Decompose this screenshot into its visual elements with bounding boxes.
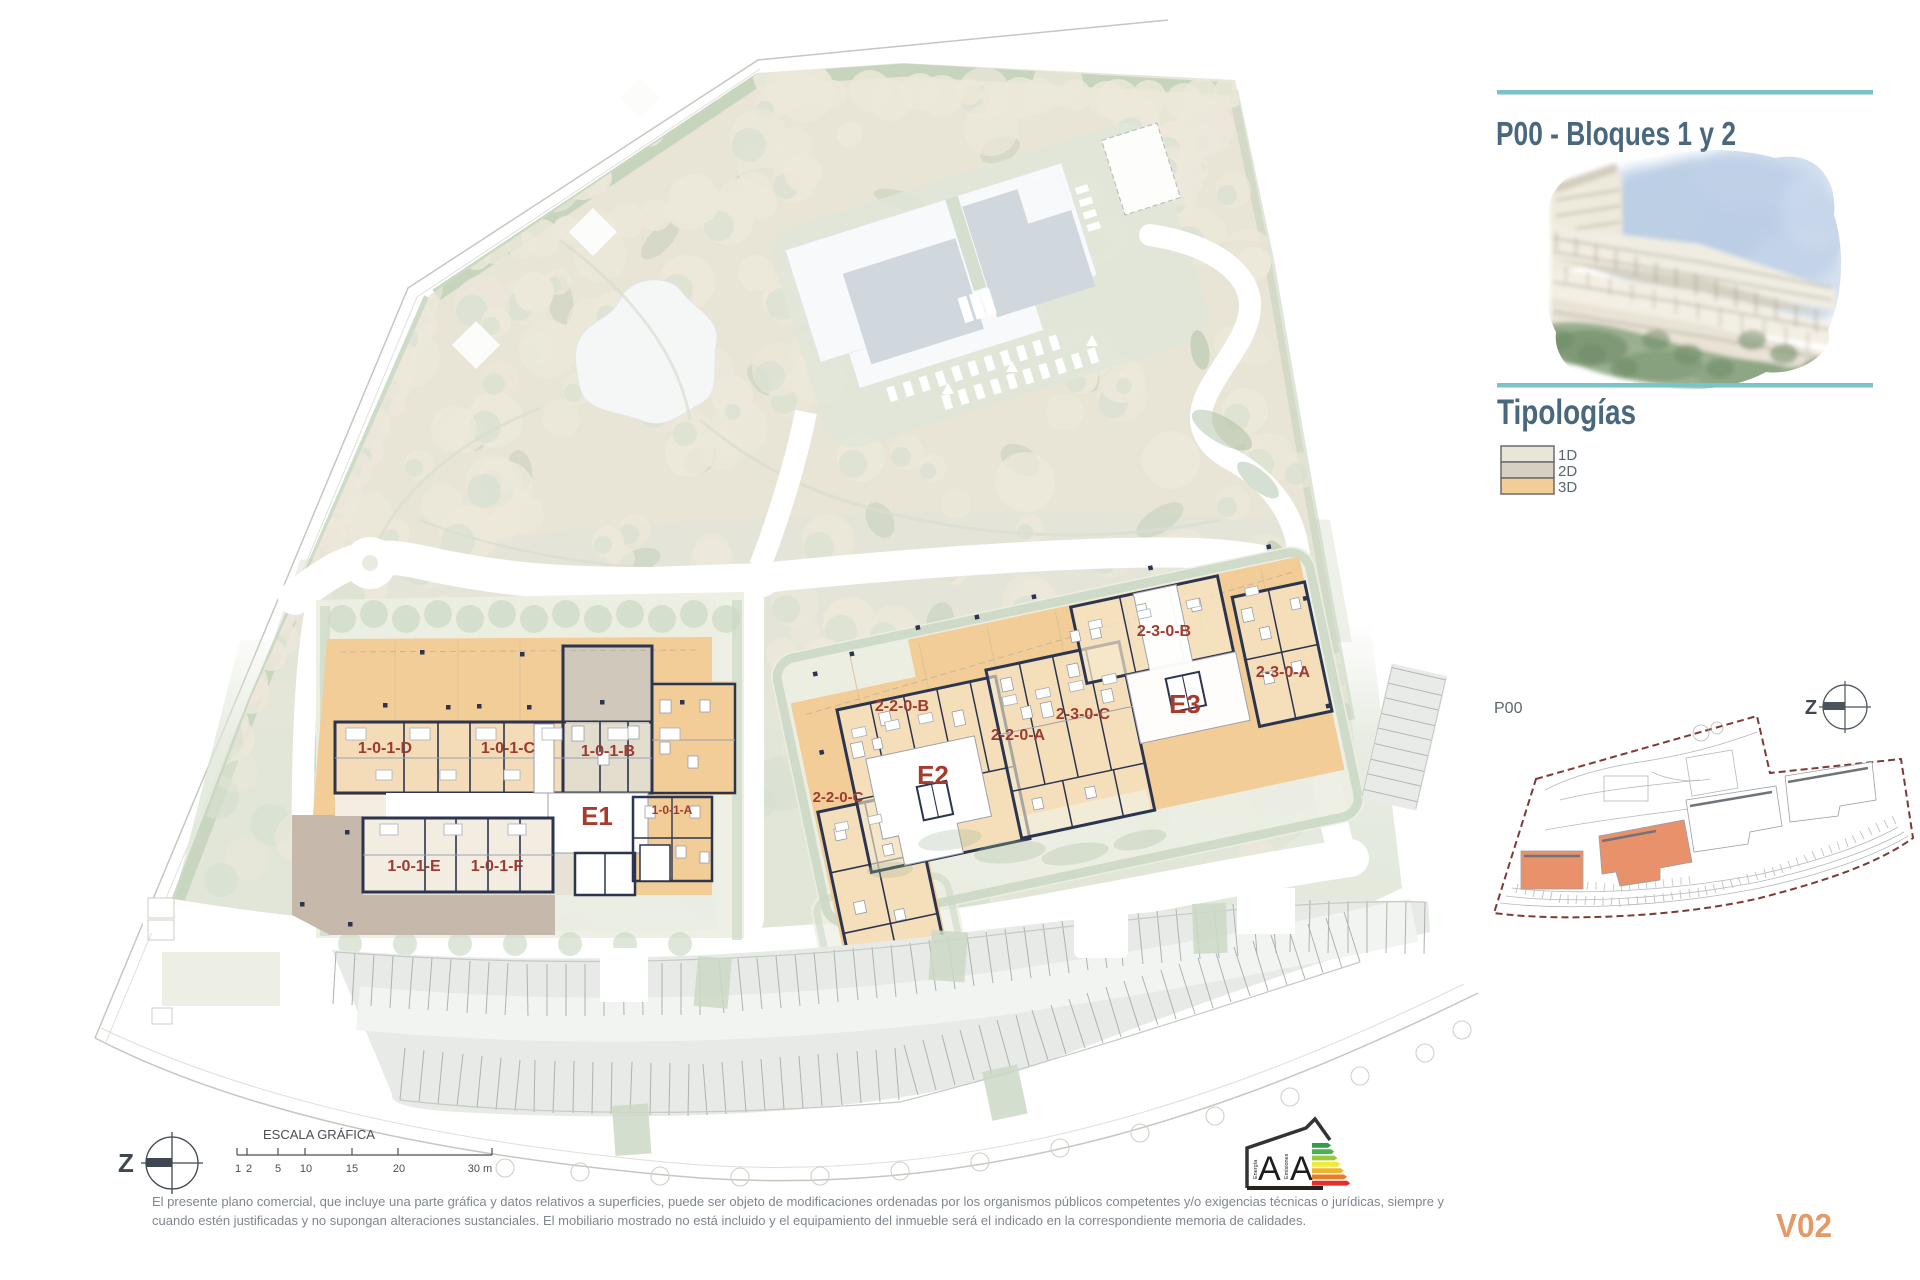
svg-text:Z: Z xyxy=(1805,697,1817,719)
svg-text:2-3-0-C: 2-3-0-C xyxy=(1056,706,1111,723)
svg-text:2-2-0-A: 2-2-0-A xyxy=(991,727,1046,744)
svg-text:E2: E2 xyxy=(917,760,949,790)
svg-text:2: 2 xyxy=(246,1163,252,1175)
svg-text:E3: E3 xyxy=(1169,689,1201,719)
svg-text:2-2-0-C: 2-2-0-C xyxy=(813,789,864,806)
svg-text:ESCALA GRÁFICA: ESCALA GRÁFICA xyxy=(263,1127,375,1142)
svg-text:Tipologías: Tipologías xyxy=(1497,393,1636,432)
svg-text:1-0-1-C: 1-0-1-C xyxy=(481,740,536,757)
svg-text:Emisiones: Emisiones xyxy=(1284,1153,1290,1179)
svg-text:20: 20 xyxy=(393,1163,405,1175)
svg-text:1-0-1-A: 1-0-1-A xyxy=(652,803,693,817)
svg-text:1: 1 xyxy=(235,1163,241,1175)
svg-text:2-3-0-B: 2-3-0-B xyxy=(1137,623,1191,640)
svg-text:cuando estén justificadas y no: cuando estén justificadas y no supongan … xyxy=(152,1213,1306,1228)
svg-text:El presente plano comercial, q: El presente plano comercial, que incluye… xyxy=(152,1194,1445,1209)
svg-text:5: 5 xyxy=(275,1163,281,1175)
svg-text:A: A xyxy=(1258,1150,1281,1188)
svg-text:P00 - Bloques 1 y 2: P00 - Bloques 1 y 2 xyxy=(1496,115,1736,152)
svg-text:1-0-1-B: 1-0-1-B xyxy=(581,743,635,760)
svg-text:3D: 3D xyxy=(1558,479,1577,496)
svg-text:1-0-1-D: 1-0-1-D xyxy=(358,740,412,757)
svg-text:1-0-1-E: 1-0-1-E xyxy=(387,858,441,875)
svg-text:1D: 1D xyxy=(1558,447,1577,464)
svg-text:P00: P00 xyxy=(1494,700,1523,717)
svg-text:15: 15 xyxy=(346,1163,358,1175)
svg-text:Energía: Energía xyxy=(1253,1159,1259,1179)
svg-text:1-0-1-F: 1-0-1-F xyxy=(471,858,524,875)
svg-text:V02: V02 xyxy=(1776,1207,1832,1244)
svg-text:Z: Z xyxy=(118,1148,134,1178)
svg-text:2-2-0-B: 2-2-0-B xyxy=(875,698,929,715)
svg-text:10: 10 xyxy=(300,1163,312,1175)
svg-text:E1: E1 xyxy=(581,801,613,831)
svg-text:2D: 2D xyxy=(1558,463,1577,480)
svg-text:A: A xyxy=(1290,1150,1313,1188)
svg-text:2-3-0-A: 2-3-0-A xyxy=(1256,664,1311,681)
svg-text:30 m: 30 m xyxy=(468,1163,492,1175)
